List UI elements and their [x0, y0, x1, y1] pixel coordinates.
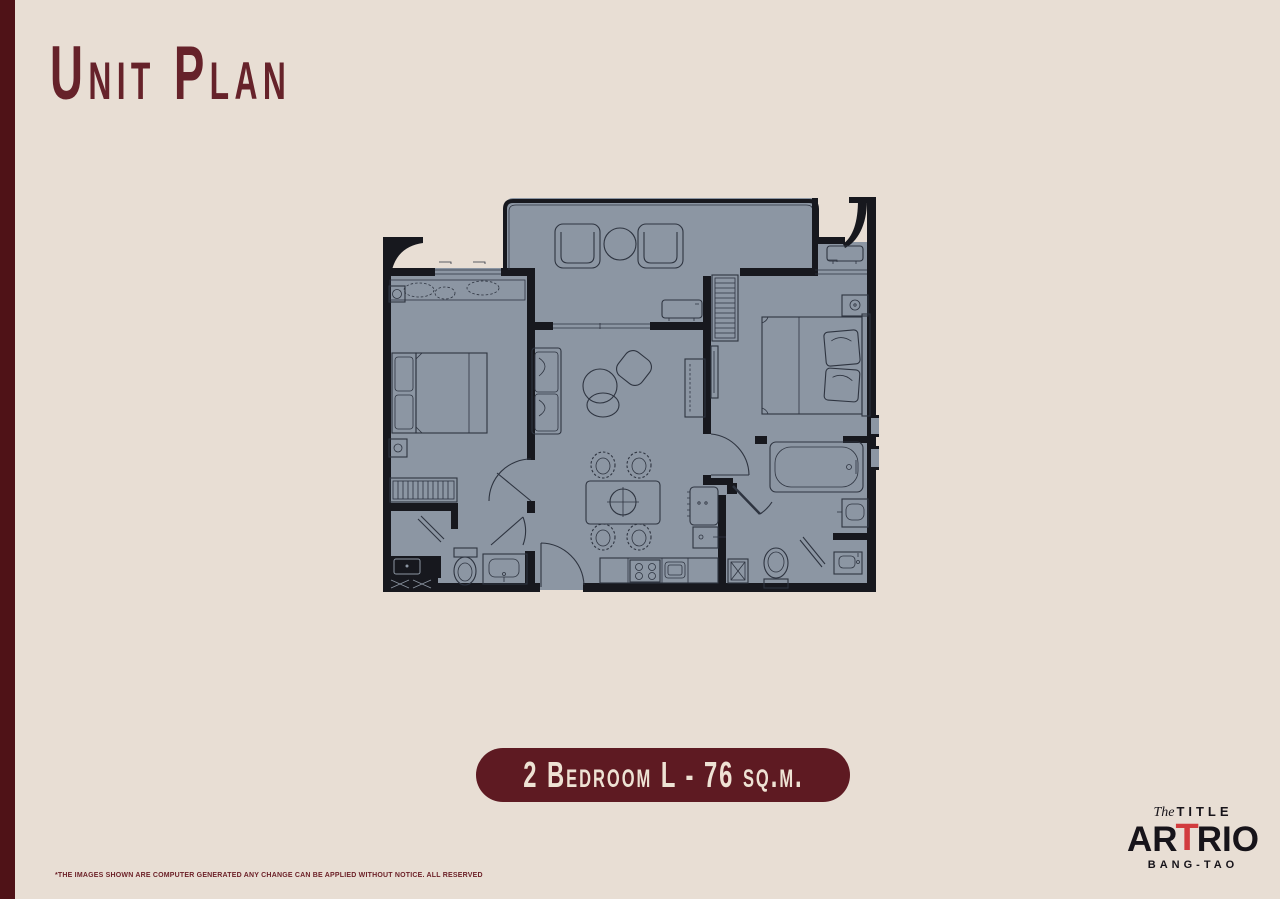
brand-logo-right: RIO	[1197, 820, 1259, 859]
vanity-sink-icon	[386, 556, 441, 578]
bath-bench	[385, 578, 438, 590]
brand-logo-left: AR	[1127, 820, 1178, 859]
interior-floor	[383, 268, 873, 590]
brand-logo: TheTITLE ARTRIO BANG-TAO	[1118, 804, 1268, 871]
unit-type-badge: 2 Bedroom L - 76 sq.m.	[476, 748, 850, 802]
page-title: Unit Plan	[50, 30, 291, 117]
curved-corner-top-left	[383, 237, 423, 270]
left-accent-stripe	[0, 0, 15, 899]
window-box	[868, 446, 879, 470]
window-box	[868, 415, 879, 437]
window-sill-ticks	[439, 262, 485, 264]
brand-logo-accent: T	[1176, 817, 1199, 859]
floor-areas	[383, 198, 873, 590]
brand-logo-main: ARTRIO	[1118, 821, 1268, 857]
unit-type-label: 2 Bedroom L - 76 sq.m.	[523, 754, 803, 796]
curved-corner-top-right	[843, 200, 867, 248]
floor-plan	[381, 196, 879, 594]
unit-plan-page: Unit Plan	[0, 0, 1280, 899]
balcony-floor-right	[681, 198, 818, 276]
brand-logo-location: BANG-TAO	[1118, 859, 1268, 871]
brand-logo-script: The	[1153, 805, 1174, 820]
disclaimer-text: *THE IMAGES SHOWN ARE COMPUTER GENERATED…	[55, 872, 483, 879]
